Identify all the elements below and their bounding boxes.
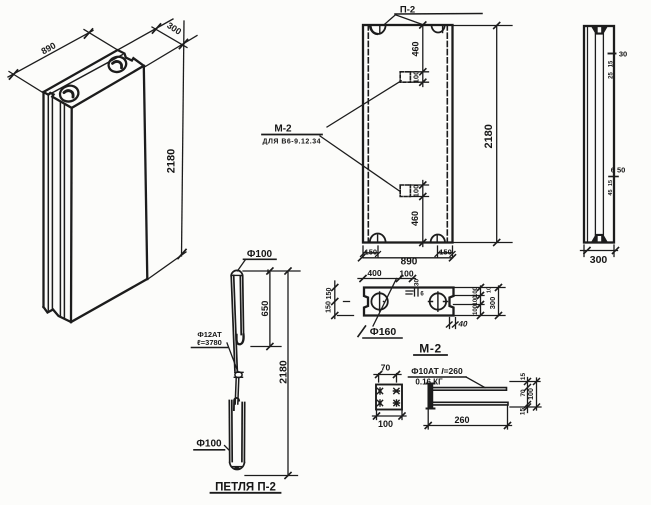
svg-text:150: 150: [326, 288, 333, 300]
svg-text:15: 15: [608, 180, 614, 186]
svg-text:150: 150: [439, 248, 452, 257]
svg-text:70: 70: [520, 389, 527, 397]
svg-text:260: 260: [454, 415, 469, 425]
svg-text:30: 30: [414, 279, 421, 287]
svg-text:890: 890: [401, 257, 418, 268]
svg-text:100: 100: [399, 269, 413, 279]
svg-text:100: 100: [473, 304, 479, 315]
svg-text:460: 460: [410, 41, 420, 56]
svg-text:650: 650: [260, 301, 271, 317]
svg-text:15: 15: [520, 408, 527, 416]
svg-text:400: 400: [367, 268, 381, 278]
svg-text:2180: 2180: [166, 149, 178, 173]
svg-text:М-2: М-2: [274, 124, 292, 135]
svg-text:100: 100: [528, 388, 535, 400]
svg-text:15: 15: [520, 373, 527, 381]
svg-text:100: 100: [411, 185, 420, 198]
svg-text:Ф160: Ф160: [370, 326, 397, 338]
svg-text:0.16 КГ: 0.16 КГ: [415, 378, 443, 387]
svg-text:Ф100: Ф100: [196, 439, 222, 450]
svg-text:Ф10АТ l=260: Ф10АТ l=260: [411, 366, 463, 376]
svg-text:100: 100: [473, 295, 479, 306]
svg-text:150: 150: [365, 248, 378, 257]
svg-text:70: 70: [381, 363, 391, 373]
svg-text:460: 460: [410, 211, 420, 226]
svg-text:ℓ=3780: ℓ=3780: [197, 338, 222, 347]
svg-text:300: 300: [488, 297, 497, 310]
svg-text:6 50: 6 50: [611, 166, 626, 175]
svg-text:30: 30: [619, 50, 627, 59]
svg-text:150: 150: [326, 301, 333, 313]
svg-text:ПЕТЛЯ П-2: ПЕТЛЯ П-2: [215, 482, 276, 494]
svg-text:ДЛЯ В6-9.12.34: ДЛЯ В6-9.12.34: [263, 139, 321, 146]
svg-text:М-2: М-2: [419, 342, 441, 356]
svg-text:2180: 2180: [277, 360, 289, 384]
svg-text:45: 45: [608, 189, 614, 195]
svg-text:100: 100: [378, 419, 393, 429]
svg-text:300: 300: [590, 254, 608, 266]
svg-text:10: 10: [487, 287, 493, 293]
svg-text:2180: 2180: [483, 124, 495, 148]
svg-text:100: 100: [473, 286, 479, 297]
svg-text:15: 15: [608, 60, 614, 67]
svg-text:Ф100: Ф100: [247, 249, 273, 260]
svg-text:100: 100: [411, 71, 420, 84]
svg-text:25: 25: [608, 72, 614, 79]
